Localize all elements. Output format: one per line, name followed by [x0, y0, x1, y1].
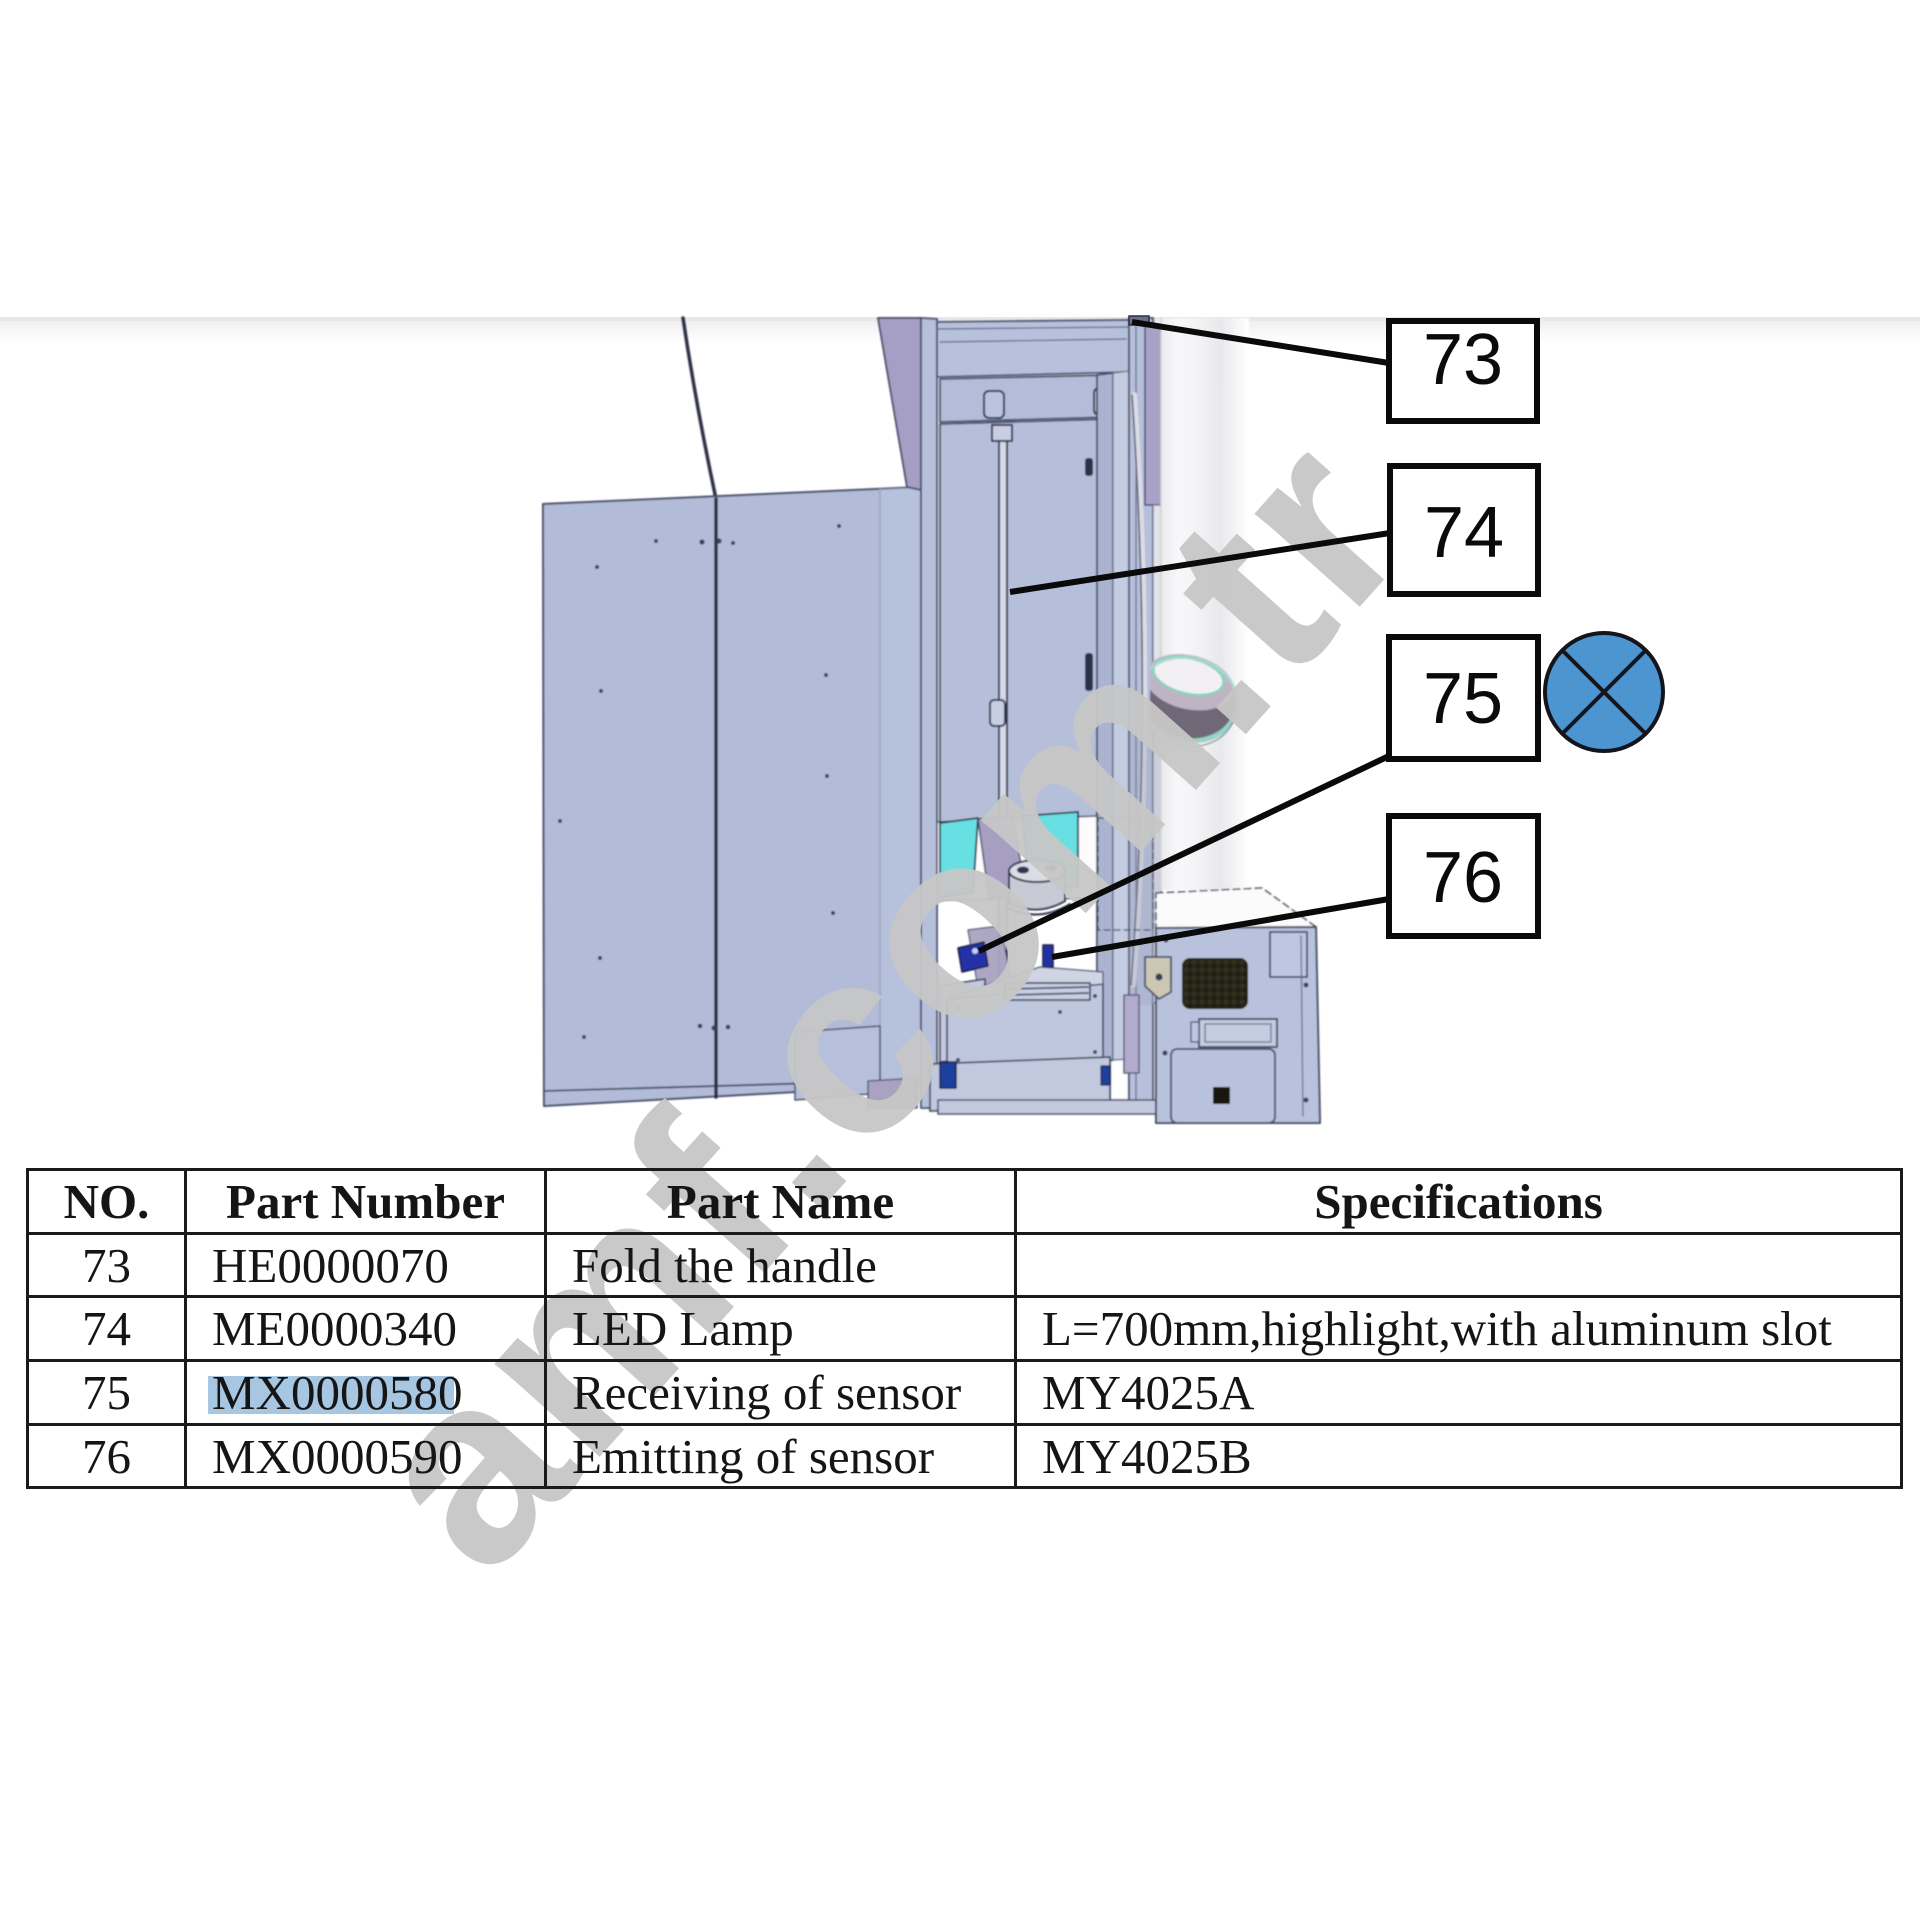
svg-text:75: 75 [1423, 659, 1503, 739]
svg-text:73: 73 [1423, 320, 1503, 400]
svg-text:76: 76 [1423, 838, 1503, 918]
svg-text:74: 74 [1424, 493, 1504, 573]
